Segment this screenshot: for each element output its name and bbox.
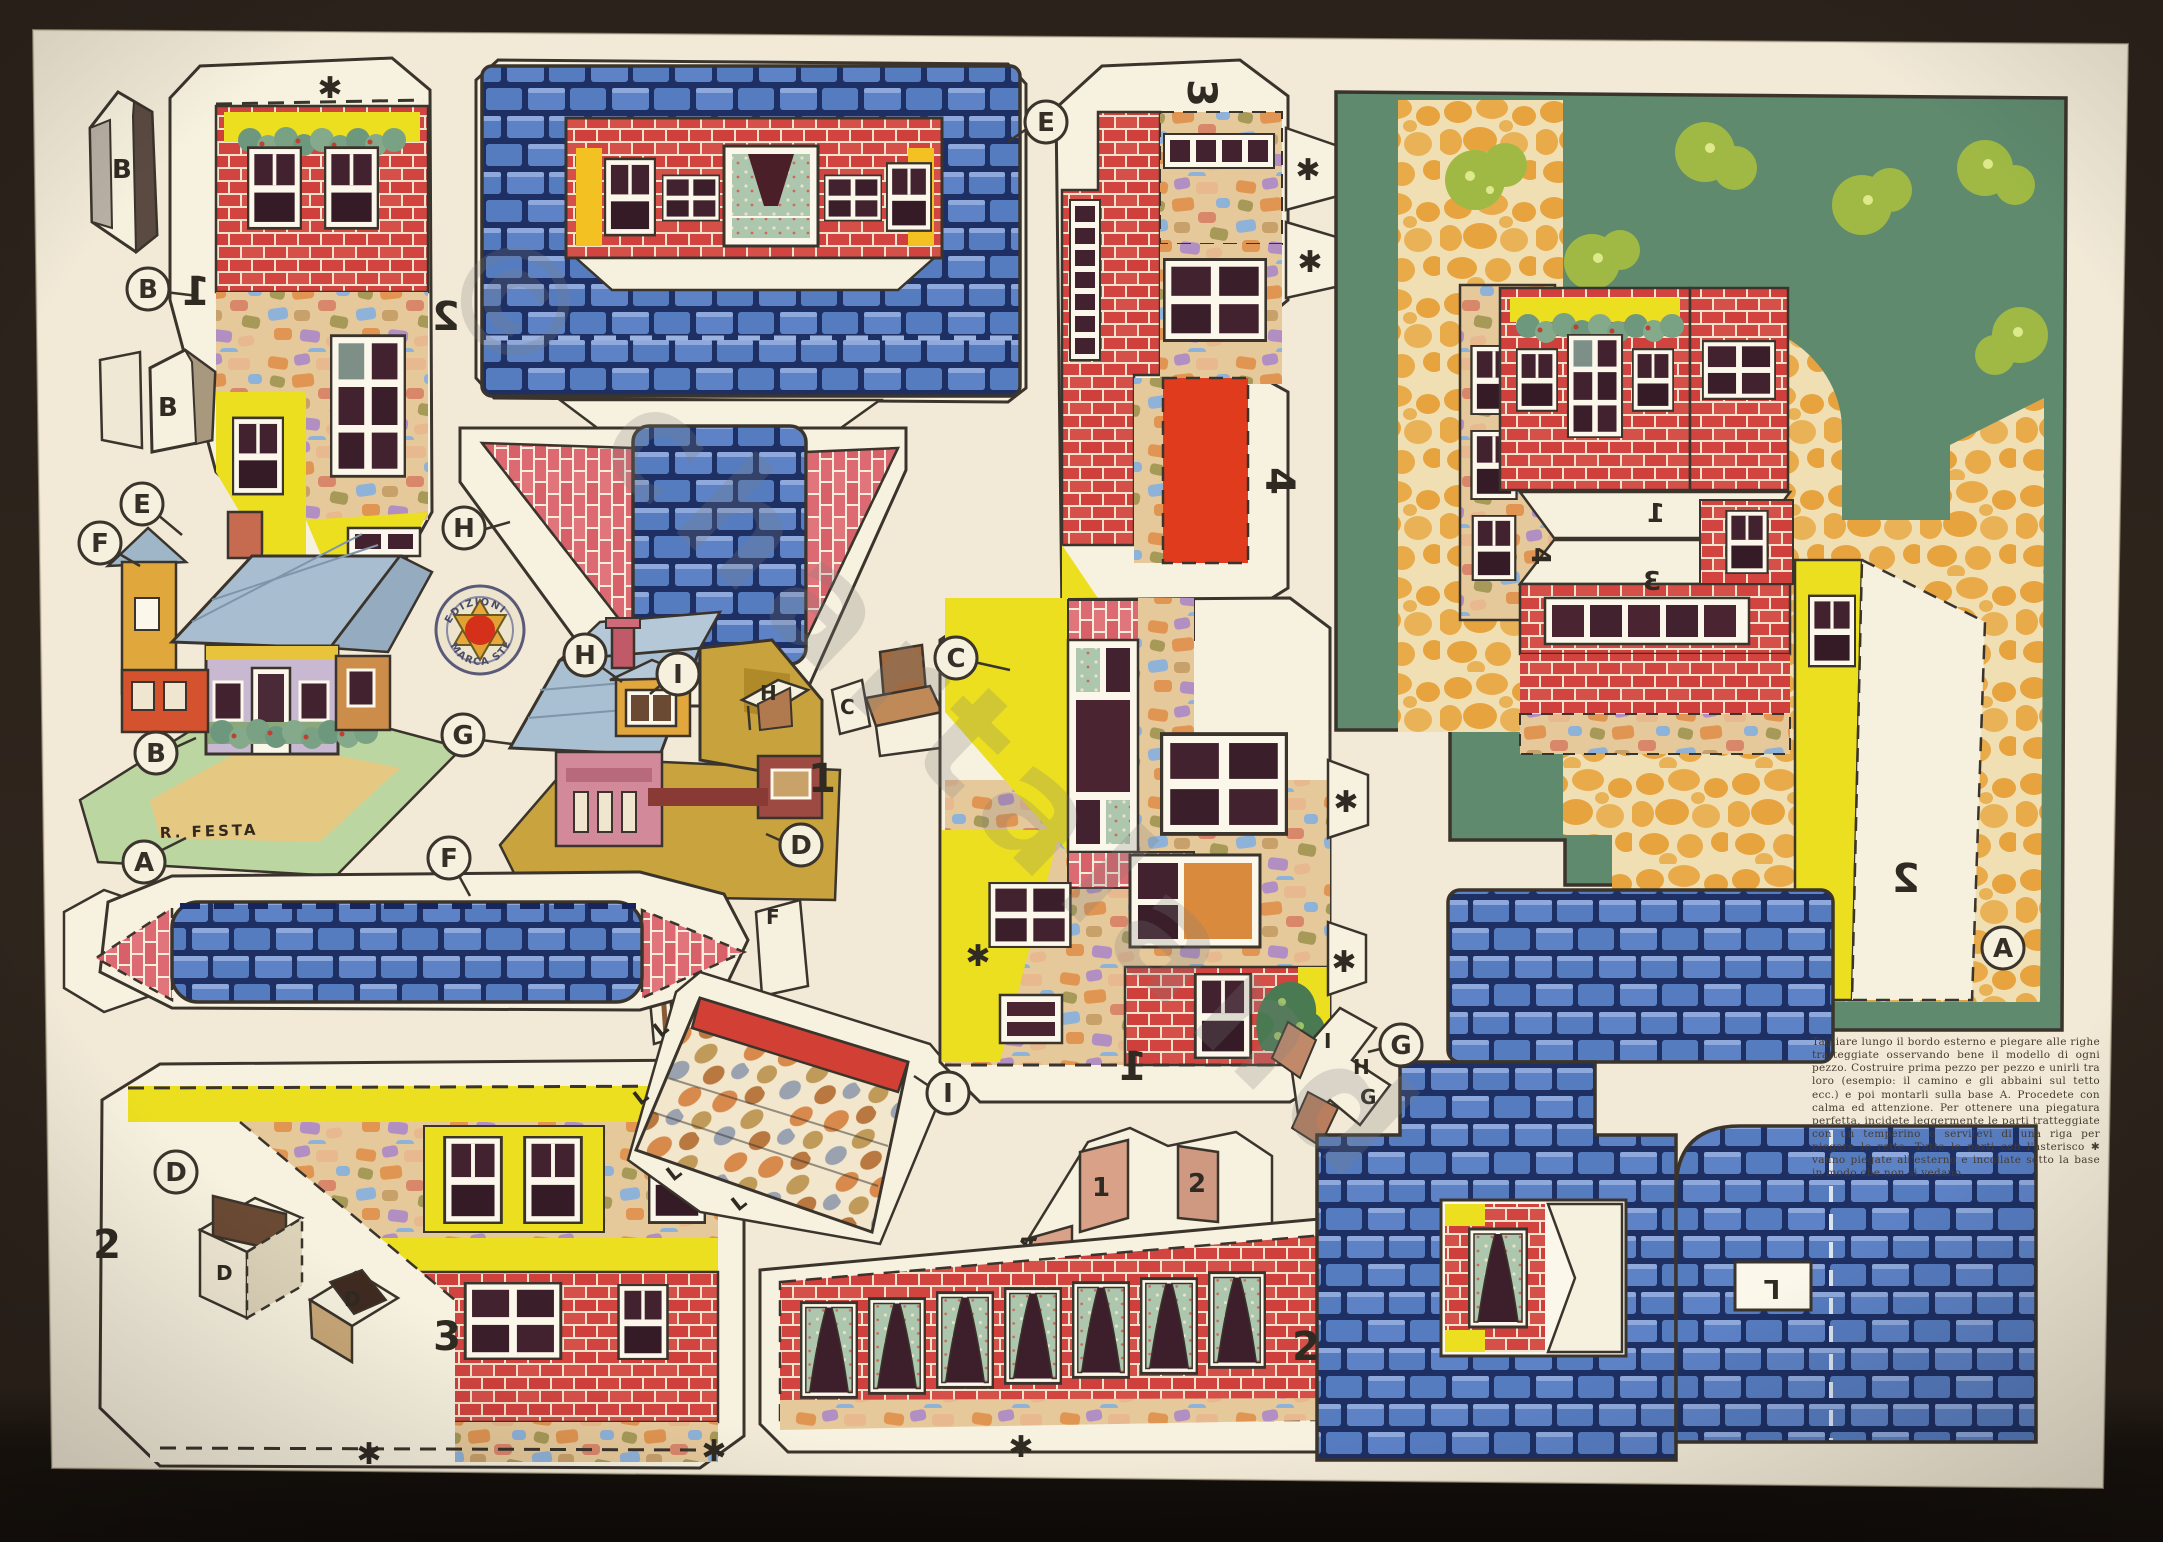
photo-vignette — [0, 0, 2163, 1542]
photographed-cutout-sheet: B B EDIZIONI MARCA STELLA — [0, 0, 2163, 1542]
sheet-artwork: B B EDIZIONI MARCA STELLA — [0, 0, 2163, 1542]
instructions-paragraph: Tagliare lungo il bordo esterno e piegar… — [1812, 1036, 2100, 1180]
